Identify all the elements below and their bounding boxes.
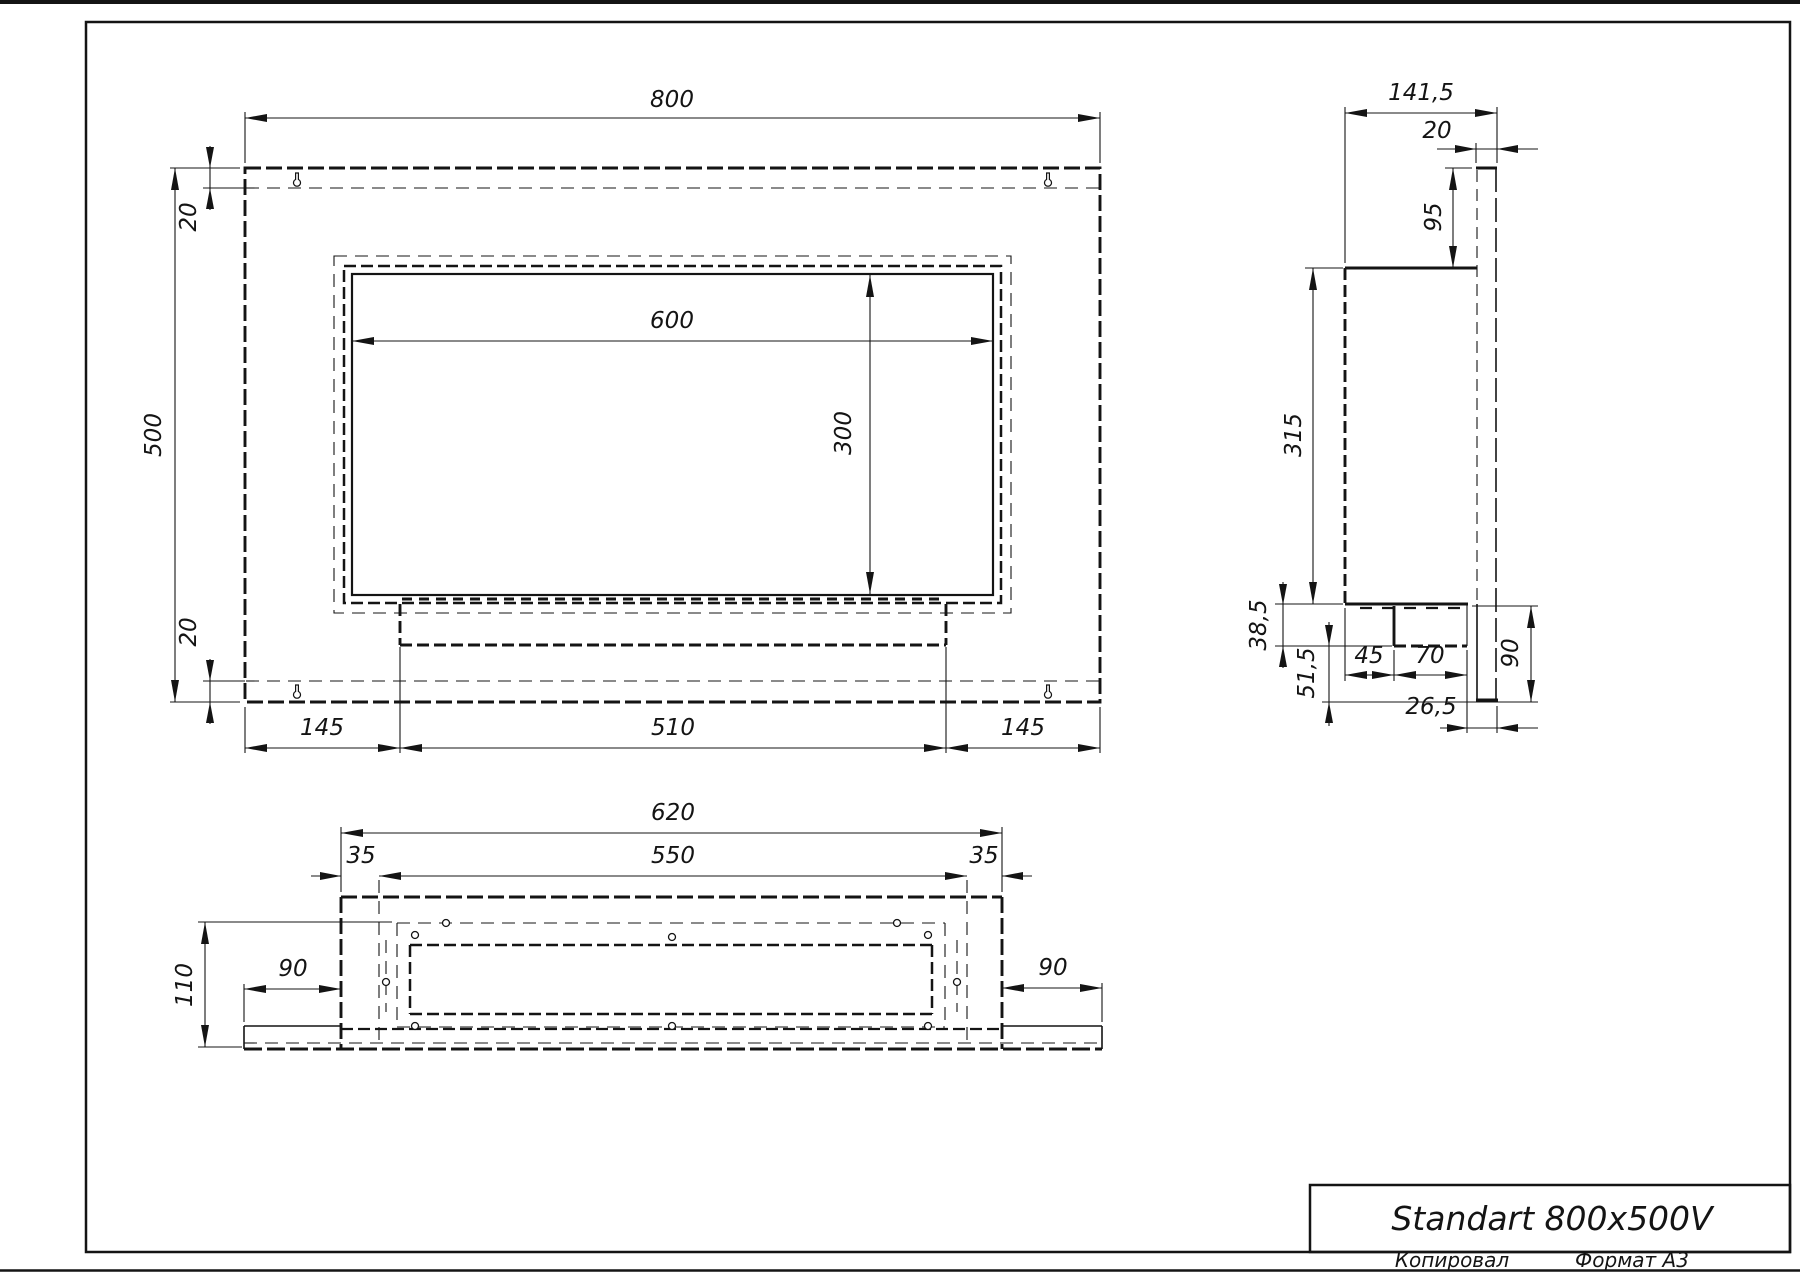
svg-text:35: 35	[346, 843, 375, 869]
copied-label: Копировал	[1395, 1248, 1509, 1272]
svg-text:145: 145	[1001, 715, 1045, 741]
svg-text:500: 500	[141, 413, 167, 457]
dim-front-opening-width: 600	[352, 308, 993, 345]
bottom-tray-hidden-rect	[410, 945, 932, 1014]
title-block: Standart 800x500V Копировал Формат A3	[1310, 1185, 1790, 1272]
dim-side-depth: 141,5	[1345, 80, 1497, 263]
front-outer-body	[245, 168, 1100, 702]
svg-text:20: 20	[176, 202, 202, 231]
keyhole-slot-icon	[1045, 173, 1052, 186]
svg-text:20: 20	[1422, 118, 1451, 144]
page-frame	[0, 2, 1800, 1271]
dim-bottom-margin-right: 35	[969, 843, 1032, 880]
keyhole-slot-icon	[1045, 685, 1052, 698]
blueprint-page: 800 500 20 20	[0, 0, 1800, 1273]
svg-text:35: 35	[969, 843, 998, 869]
svg-text:110: 110	[172, 963, 198, 1007]
dim-side-back-gap: 20	[1422, 118, 1538, 163]
drawing-title: Standart 800x500V	[1391, 1199, 1715, 1238]
svg-text:90: 90	[278, 956, 307, 982]
dim-bottom-flange-right: 90	[1002, 955, 1102, 1022]
drawing-canvas: 800 500 20 20	[0, 0, 1800, 1273]
dim-front-opening-height: 300	[831, 275, 874, 594]
format-label: Формат A3	[1575, 1248, 1689, 1272]
svg-text:620: 620	[651, 800, 695, 826]
svg-text:70: 70	[1415, 643, 1444, 669]
side-view: 141,5 20 95 315	[1246, 80, 1538, 733]
keyhole-slot-icon	[294, 685, 301, 698]
dim-side-bracket-height: 90	[1472, 606, 1538, 702]
svg-text:600: 600	[650, 308, 694, 334]
svg-text:315: 315	[1281, 413, 1307, 457]
svg-text:90: 90	[1038, 955, 1067, 981]
dim-bottom-inner-width: 550	[379, 843, 967, 880]
dim-side-back-offset: 26,5	[1405, 694, 1538, 733]
dim-side-box-height: 315	[1275, 268, 1343, 604]
keyhole-slot-icon	[294, 173, 301, 186]
dim-front-bottom-chain: 145 510 145	[245, 647, 1100, 753]
svg-text:26,5: 26,5	[1405, 694, 1456, 720]
dim-side-top-to-box: 95	[1421, 168, 1472, 268]
svg-text:300: 300	[831, 411, 857, 455]
dim-bottom-margin-left: 35	[311, 843, 376, 880]
bottom-view: 620 550 35 35 110	[172, 800, 1102, 1049]
svg-text:45: 45	[1354, 643, 1383, 669]
svg-text:510: 510	[651, 715, 695, 741]
svg-text:141,5: 141,5	[1388, 80, 1454, 106]
dim-front-top-offset: 20	[176, 146, 245, 232]
dim-bottom-flange-left: 90	[244, 956, 341, 1022]
svg-text:51,5: 51,5	[1294, 647, 1320, 698]
svg-text:800: 800	[650, 87, 694, 113]
dim-side-bottom-drop: 51,5	[1294, 622, 1333, 726]
svg-text:38,5: 38,5	[1246, 599, 1272, 650]
svg-text:20: 20	[176, 617, 202, 646]
svg-text:95: 95	[1421, 202, 1447, 231]
svg-text:145: 145	[300, 715, 344, 741]
dim-front-width: 800	[245, 87, 1100, 163]
svg-text:550: 550	[651, 843, 695, 869]
dim-front-bottom-offset: 20	[176, 617, 245, 724]
svg-text:90: 90	[1498, 638, 1524, 667]
front-view: 800 500 20 20	[141, 87, 1100, 753]
